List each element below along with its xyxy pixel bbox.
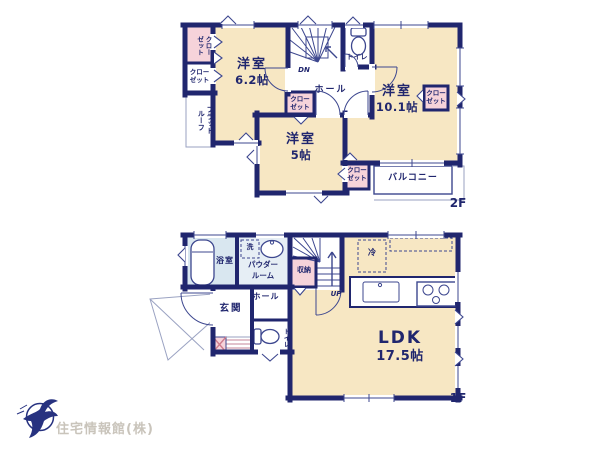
room-2f-5-label: 洋室 5帖 [261,132,341,163]
laundry-label: 洗 [242,243,258,252]
ldk-name: LDK [338,328,462,349]
company-logo-icon [17,399,58,438]
entrance-porch-outline [150,294,213,360]
powder-room-label: パウダールーム [238,260,288,281]
flat-roof-label: フラットルーフ [185,104,214,136]
storage-label: 収納 [290,266,318,275]
refrigerator-label: 冷 [359,248,385,258]
closet-2f-left-label: クローゼット [186,68,213,85]
company-name: 住宅情報館(株) [56,422,206,438]
toilet-1f-label: トイレ [279,323,290,353]
room-2f-6-2-label: 洋室 6.2帖 [212,57,292,88]
closet-2f-top-left-label: クローゼット [188,34,212,57]
toilet-1f-icon [254,329,279,344]
floor-1f-label: 1F [445,391,471,406]
floor-2f-label: 2F [445,196,471,211]
room-2f-10-1-label: 洋室 10.1帖 [365,84,429,115]
hall-1f-label: ホール [244,292,288,302]
washbasin-icon [261,241,283,258]
stairs-down-label: DN [293,66,315,75]
stairs-2f-icon [290,25,337,62]
closet-2f-right-label: クローゼット [423,89,449,106]
ldk-label: LDK 17.5帖 [338,328,462,366]
balcony-label: バルコニー [375,173,451,184]
ldk-size: 17.5帖 [338,349,462,365]
closet-2f-bottom-label: クローゼット [344,166,370,183]
bath-label: 浴室 [208,256,242,266]
closet-2f-center-label: クローゼット [286,95,314,112]
entrance-label: 玄関 [211,303,251,315]
toilet-2f-label: トイレ [341,53,373,62]
room-2f-10-1-name: 洋室 [365,84,429,100]
room-2f-6-2-name: 洋室 [212,57,292,73]
room-2f-5-name: 洋室 [261,132,341,148]
floorplan-canvas: クローゼット クローゼット フラットルーフ 洋室 6.2帖 DN ホール トイレ… [0,0,600,450]
room-2f-5-size: 5帖 [261,148,341,162]
toilet-2f-icon [351,28,366,55]
room-2f-6-2-size: 6.2帖 [212,73,292,87]
stairs-up-label: UP [322,290,350,299]
room-2f-10-1-size: 10.1帖 [365,100,429,114]
